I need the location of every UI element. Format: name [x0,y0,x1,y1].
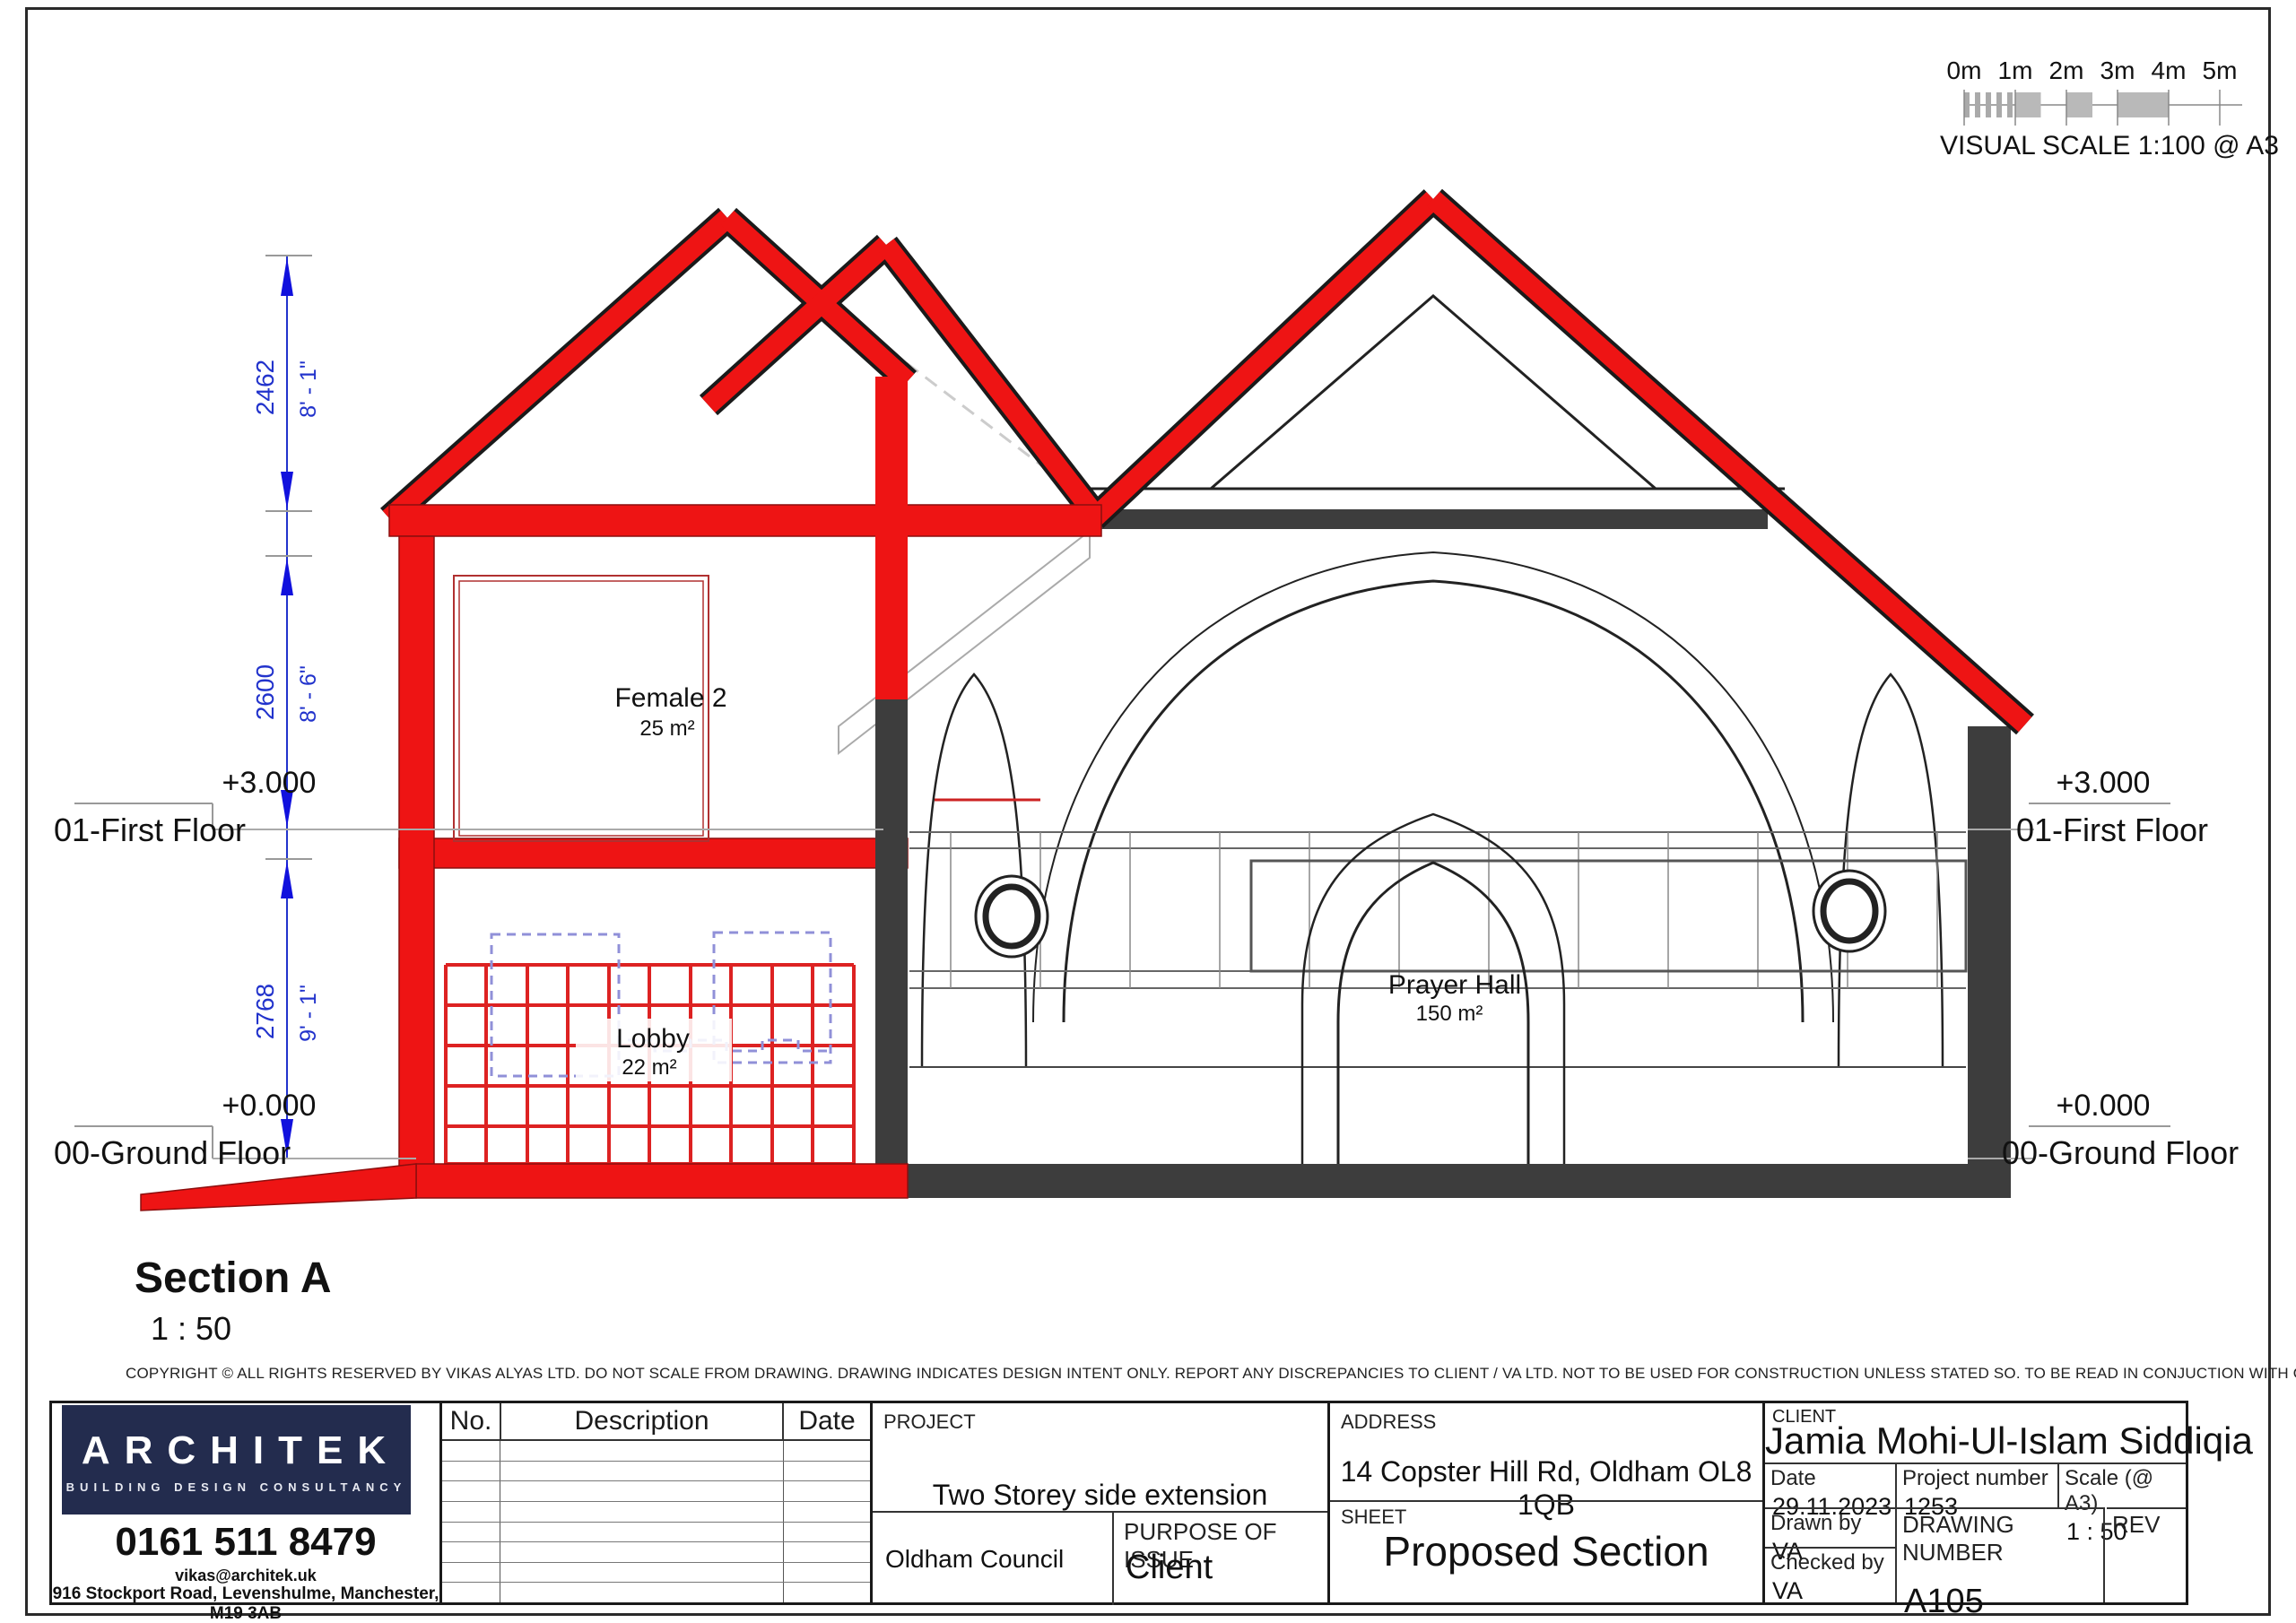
level-ff-right-label: 01-First Floor [2016,811,2208,848]
section-drawing: 0m 1m 2m 3m 4m 5m VISUAL SCALE 1:100 @ A… [0,0,2296,1399]
hall-arch-inner [1064,581,1803,1022]
revision-row [442,1523,870,1543]
level-ff-left-value: +3.000 [222,766,317,800]
client-name: Jamia Mohi-Ul-Islam Siddiqia [1765,1419,2186,1462]
level-markers: +3.000 01-First Floor +0.000 00-Ground F… [54,766,2239,1171]
logo-brand-text: ARCHITEK [62,1405,411,1473]
level-gf-right-label: 00-Ground Floor [2002,1134,2239,1171]
room-lobby-name: Lobby [616,1024,690,1054]
revision-row [442,1441,870,1462]
new-extension [141,199,2025,1211]
title-block-logo-cell: ARCHITEK BUILDING DESIGN CONSULTANCY 016… [52,1403,442,1602]
dim-1-mm: 2462 [251,360,279,415]
client-grid: Date 29.11.2023 Project number 1253 Scal… [1765,1462,2186,1602]
drawing-sheet: 0m 1m 2m 3m 4m 5m VISUAL SCALE 1:100 @ A… [0,0,2296,1623]
dim-3-mm: 2768 [251,984,279,1039]
roundel-window-left [976,876,1048,957]
scale-label-0m: 0m [1947,56,1982,84]
revision-row [442,1462,870,1482]
hall-arch-outer [1033,552,1833,1022]
right-wall [1968,726,2011,1167]
revision-col-date: Date [784,1403,870,1439]
extension-ground-slab [416,1164,908,1198]
planning-authority: Oldham Council [885,1545,1064,1574]
view-title: Section A 1 : 50 [135,1254,332,1348]
visual-scale-caption: VISUAL SCALE 1:100 @ A3 [1940,131,2279,161]
sheet-title: Proposed Section [1330,1527,1762,1575]
logo-tagline: BUILDING DESIGN CONSULTANCY [62,1480,411,1494]
sheet-label: SHEET [1341,1506,1406,1529]
address-divider [1330,1500,1762,1502]
revision-row [442,1542,870,1563]
dim-3-ft: 9' - 1" [296,985,321,1042]
room-female2-name: Female 2 [614,683,726,713]
side-arch-left [922,674,1026,1067]
roof-outlines [389,199,2025,725]
existing-building [908,296,2011,1198]
project-number-label: Project number [1897,1464,2057,1491]
scale-label-5m: 5m [2203,56,2238,84]
view-title-scale: 1 : 50 [151,1310,332,1348]
level-gf-right-value: +0.000 [2057,1089,2151,1123]
scale-label-3m: 3m [2100,56,2135,84]
party-wall-existing [875,699,908,1166]
address-cell: ADDRESS 14 Copster Hill Rd, Oldham OL8 1… [1330,1403,1765,1602]
roof-members-red [389,199,2025,725]
dim-2-ft: 8' - 6" [296,665,321,723]
phone-number: 0161 511 8479 [52,1520,439,1565]
scale-label-2m: 2m [2049,56,2084,84]
level-ff-left-label: 01-First Floor [54,811,246,848]
visual-scale-bar: 0m 1m 2m 3m 4m 5m VISUAL SCALE 1:100 @ A… [1940,56,2279,161]
room-prayer-hall-name: Prayer Hall [1388,970,1521,1000]
revision-row [442,1563,870,1584]
email-address: vikas@architek.uk [52,1567,439,1585]
dimension-string: 2462 8' - 1" 2600 8' - 6" 2768 9' - 1" [251,256,321,1159]
checked-by-value: VA [1765,1575,1895,1605]
room-female2-area: 25 m² [639,716,694,741]
drawing-number-value: A105 [1897,1567,2103,1621]
checked-by-label: Checked by [1765,1549,1895,1575]
revision-row [442,1583,870,1602]
copyright-note: COPYRIGHT © ALL RIGHTS RESERVED BY VIKAS… [126,1365,2188,1383]
drawing-number-label: DRAWING NUMBER [1897,1509,2103,1567]
revision-col-description: Description [501,1403,784,1439]
ceiling-beam [1031,509,1768,529]
ground-slab [908,1164,2011,1198]
revision-row [442,1502,870,1523]
architek-logo: ARCHITEK BUILDING DESIGN CONSULTANCY [62,1405,411,1515]
extension-first-floor-slab [399,838,908,868]
scale-label-4m: 4m [2152,56,2187,84]
revision-row [442,1481,870,1502]
revision-col-no: No. [442,1403,501,1439]
date-label: Date [1765,1464,1895,1491]
copyright-text: COPYRIGHT © ALL RIGHTS RESERVED BY VIKAS… [126,1365,2296,1382]
scale-labels: 0m 1m 2m 3m 4m 5m [1947,56,2238,84]
scale-label-1m: 1m [1998,56,2033,84]
scale-block [2015,92,2041,117]
dim-2-mm: 2600 [251,664,279,720]
rev-label: REV [2107,1509,2186,1539]
level-gf-left-label: 00-Ground Floor [54,1134,291,1171]
revision-table-header: No. Description Date [442,1403,870,1441]
extension-left-wall [399,536,434,1166]
project-divider [873,1511,1327,1513]
project-name: Two Storey side extension [873,1479,1327,1512]
purpose-divider [1112,1511,1114,1605]
band-mullions [951,832,1937,988]
project-label: PROJECT [883,1410,976,1434]
purpose-of-issue-value: Client [1126,1549,1213,1587]
title-block: ARCHITEK BUILDING DESIGN CONSULTANCY 016… [49,1401,2188,1605]
revision-table: No. Description Date [442,1403,873,1602]
client-cell: CLIENT Jamia Mohi-Ul-Islam Siddiqia Date… [1765,1403,2186,1602]
scale-block [2118,92,2170,117]
dim-1-ft: 8' - 1" [296,360,321,418]
project-cell: PROJECT Two Storey side extension Oldham… [873,1403,1330,1602]
party-wall-new [875,377,908,699]
clerestory-band [909,832,1966,988]
scale-block [2067,92,2093,117]
room-prayer-hall-area: 150 m² [1416,1002,1483,1026]
drawn-by-label: Drawn by [1765,1509,1895,1536]
roundel-window-right [1813,871,1885,951]
view-title-name: Section A [135,1254,332,1303]
address-label: ADDRESS [1341,1410,1436,1434]
office-address: 916 Stockport Road, Levenshulme, Manches… [52,1584,439,1623]
level-ff-right-value: +3.000 [2057,766,2151,800]
room-lobby-area: 22 m² [622,1055,676,1080]
level-gf-left-value: +0.000 [222,1089,317,1123]
eaves-beam [389,505,1101,536]
